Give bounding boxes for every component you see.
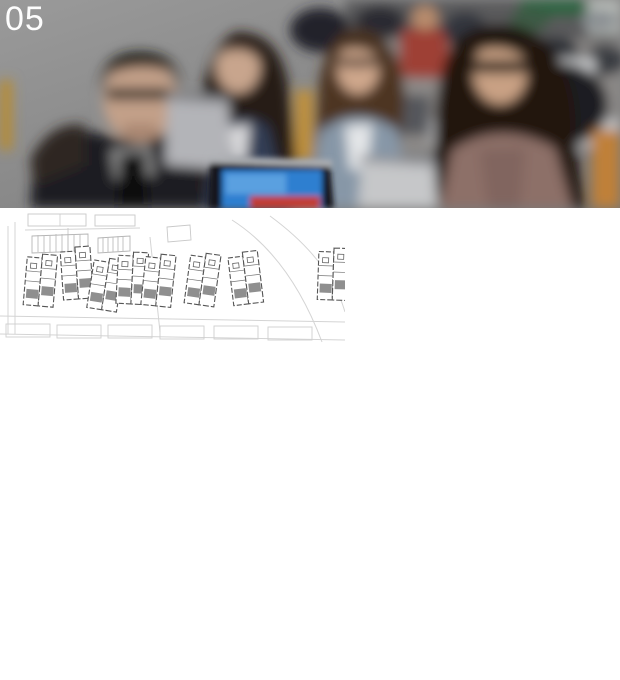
svg-text:05: 05 <box>5 0 45 38</box>
